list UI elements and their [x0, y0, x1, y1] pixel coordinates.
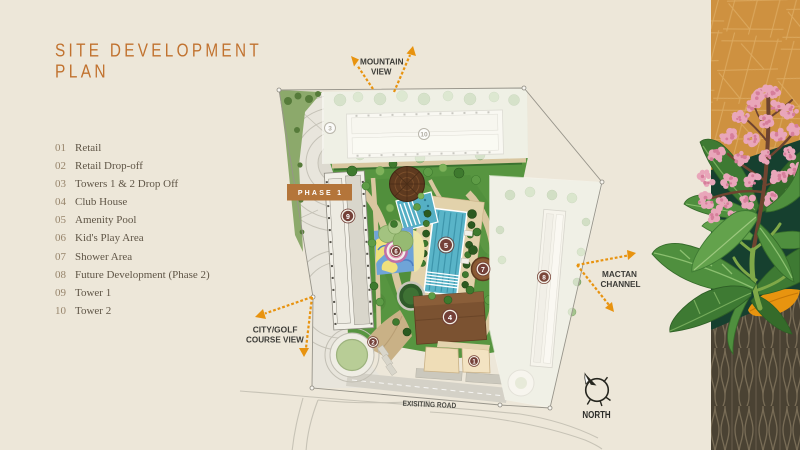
svg-text:PLAN: PLAN [55, 61, 109, 82]
svg-text:SITE DEVELOPMENT: SITE DEVELOPMENT [55, 40, 262, 61]
